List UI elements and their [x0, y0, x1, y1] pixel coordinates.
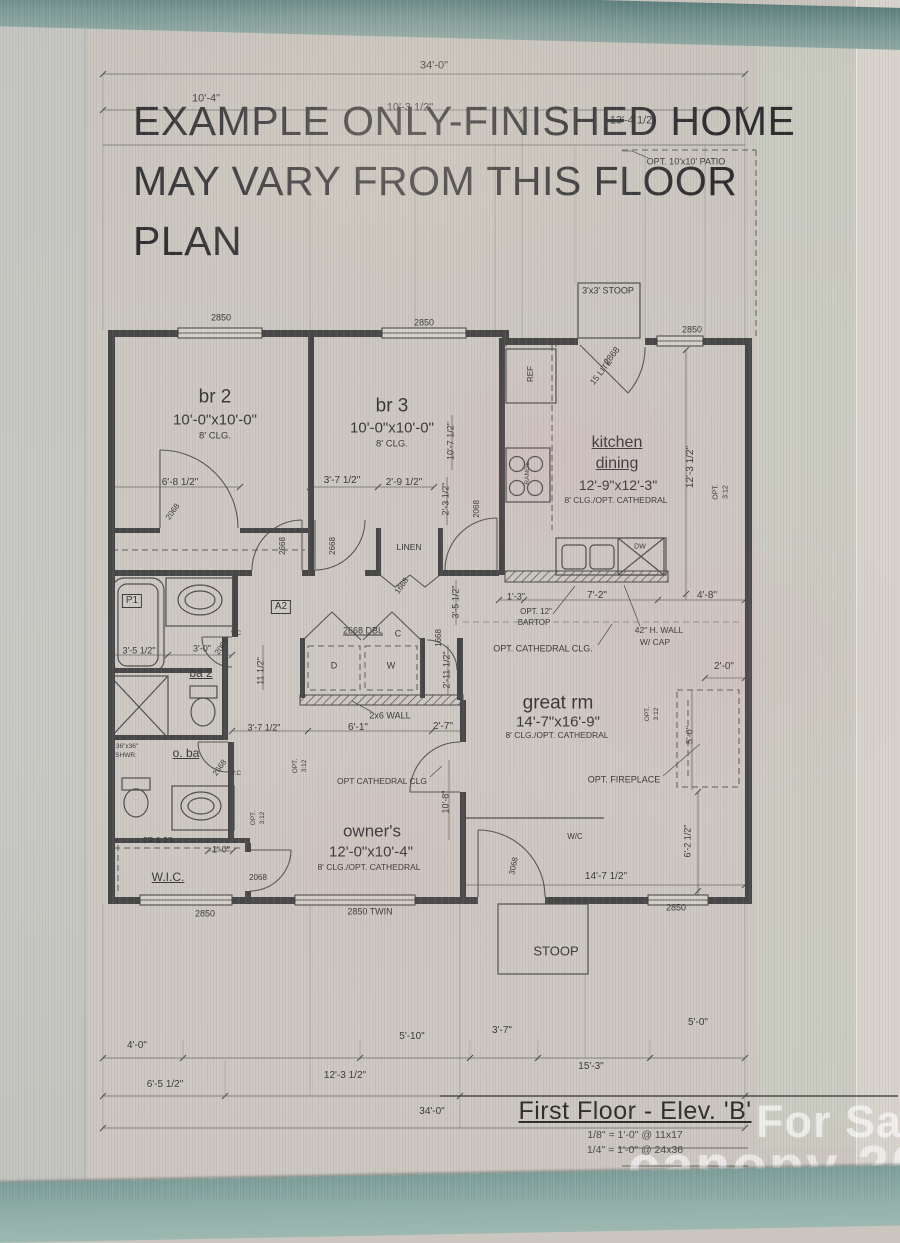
- tag-p1: P1: [122, 594, 142, 608]
- dim: 15'-3": [578, 1062, 603, 1072]
- dim: 2'-9 1/2": [386, 478, 423, 488]
- fixture-dryer: D: [331, 662, 338, 671]
- dim: 10'-8": [442, 791, 451, 814]
- label-linen: LINEN: [396, 543, 421, 552]
- dim: 14'-7 1/2": [585, 872, 627, 882]
- label-stoop-bottom: STOOP: [533, 945, 578, 958]
- dim: 1'-0": [212, 846, 230, 855]
- note-bartop: BARTOP: [518, 619, 551, 627]
- fixture-shower: SHWR.: [115, 753, 137, 760]
- fixture-ref: REF: [527, 366, 535, 382]
- room-ba2: ba 2: [189, 667, 212, 679]
- door-tag: 2068: [249, 874, 267, 882]
- dim: 7'-2": [587, 591, 607, 601]
- dim: 6'-2 1/2": [684, 825, 693, 858]
- dim: 6'-8 1/2": [162, 478, 199, 488]
- dim: 3'-0": [193, 645, 211, 654]
- dim-overall-bottom: 34'-0": [419, 1107, 444, 1117]
- room-greatrm-clg: 8' CLG./OPT. CATHEDRAL: [505, 731, 608, 740]
- room-kitchen: kitchen: [592, 435, 643, 451]
- note-opt-fireplace: OPT. FIREPLACE: [588, 776, 661, 785]
- roof-pitch: 3:12: [260, 812, 267, 825]
- tag-a2: A2: [271, 600, 291, 614]
- room-greatrm: great rm: [523, 694, 594, 713]
- room-br3-size: 10'-0"x10'-0": [350, 421, 434, 436]
- fixture-washer: W: [387, 662, 396, 671]
- room-dining: dining: [596, 456, 639, 472]
- room-kitchen-size: 12'-9"x12'-3": [579, 478, 657, 492]
- dim: 5'-10": [399, 1032, 424, 1042]
- note-vc: V.C: [231, 631, 241, 638]
- door-tag: 2668: [279, 537, 287, 555]
- note-half-wall: W/ CAP: [640, 638, 670, 647]
- door-tag: 2668 DBL: [343, 627, 383, 636]
- dim: 12'-3 1/2": [686, 446, 696, 488]
- room-br3-clg: 8' CLG.: [376, 439, 408, 449]
- window-tag: 2850: [666, 904, 686, 913]
- room-oba: o. ba: [173, 747, 200, 759]
- dim: 3'-7 1/2": [248, 724, 281, 733]
- dim: 2'-7": [433, 722, 453, 732]
- room-owners: owner's: [343, 823, 401, 840]
- roof-pitch: 3:12: [654, 708, 661, 721]
- fixture-dw: DW: [634, 544, 646, 551]
- disclaimer-line: MAY VARY FROM THIS FLOOR: [133, 152, 813, 212]
- room-br2-size: 10'-0"x10'-0": [173, 413, 257, 428]
- roof-pitch: 3:12: [723, 485, 730, 499]
- dim: 2'-3 1/2": [442, 483, 451, 516]
- dim: 2'-0": [714, 662, 734, 672]
- disclaimer-line: EXAMPLE ONLY-FINISHED HOME: [133, 92, 813, 152]
- dim: 12'-3 1/2": [324, 1071, 366, 1081]
- fixture-range: RANGE: [525, 461, 532, 484]
- screen-photo: { "colors": { "teal_band": "#7c9a96", "p…: [0, 0, 900, 1200]
- window-tag: 2850: [211, 314, 231, 323]
- window-tag: 2850: [414, 319, 434, 328]
- note-2x6-wall: 2x6 WALL: [369, 712, 410, 721]
- room-br2: br 2: [199, 388, 232, 407]
- note-vc: V.C: [231, 771, 241, 778]
- dim: 11 1/2": [257, 657, 266, 685]
- roof-pitch: OPT.: [293, 759, 300, 773]
- dim: 10'-7 1/2": [447, 422, 456, 460]
- note-rods-shelves: 2R & 2S: [143, 837, 173, 845]
- room-wic: W.I.C.: [152, 871, 185, 883]
- dim: 3'-5 1/2": [123, 647, 156, 656]
- fixture-shower-size: 36"x36": [116, 744, 138, 751]
- dim: 4'-8": [697, 591, 717, 601]
- room-kitchen-clg: 8' CLG./OPT. CATHEDRAL: [564, 496, 667, 505]
- dim: 5'-0": [688, 1018, 708, 1028]
- room-br2-clg: 8' CLG.: [199, 431, 231, 441]
- dim: 1'-3": [507, 593, 525, 602]
- window-tag: 2850 TWIN: [347, 908, 392, 917]
- label-stoop-top: 3'x3' STOOP: [582, 287, 634, 296]
- label-wc: W/C: [567, 833, 583, 841]
- window-tag: 2850: [195, 910, 215, 919]
- note-bartop: OPT. 12": [520, 608, 552, 616]
- dim: 3'-7 1/2": [324, 476, 361, 486]
- roof-pitch: OPT.: [713, 484, 720, 500]
- door-tag: 2068: [473, 500, 481, 518]
- dim: 6'-1": [348, 723, 368, 733]
- room-br3: br 3: [376, 397, 409, 416]
- note-cathedral: OPT CATHEDRAL CLG: [337, 777, 427, 786]
- dim: 3'-5 1/2": [452, 586, 461, 619]
- roof-pitch: OPT.: [251, 811, 258, 825]
- label-closet: C: [395, 630, 402, 639]
- dim: 5'-0": [686, 726, 695, 744]
- roof-pitch: 3:12: [302, 760, 309, 773]
- window-tag: 2850: [682, 326, 702, 335]
- dim: 4'-0": [127, 1041, 147, 1051]
- door-tag: 2668: [329, 537, 337, 555]
- door-tag: 1668: [435, 629, 443, 647]
- room-owners-clg: 8' CLG./OPT. CATHEDRAL: [317, 863, 420, 872]
- disclaimer-overlay: EXAMPLE ONLY-FINISHED HOME MAY VARY FROM…: [133, 92, 813, 272]
- dim: 6'-5 1/2": [147, 1080, 184, 1090]
- disclaimer-line: PLAN: [133, 212, 813, 272]
- note-half-wall: 42" H. WALL: [635, 626, 684, 635]
- dim-overall-top: 34'-0": [420, 61, 448, 72]
- dim: 3'-7": [492, 1026, 512, 1036]
- roof-pitch: OPT.: [645, 707, 652, 721]
- sheet-title: First Floor - Elev. 'B': [510, 1097, 760, 1126]
- room-greatrm-size: 14'-7"x16'-9": [516, 715, 600, 730]
- note-cathedral: OPT. CATHEDRAL CLG.: [493, 645, 593, 654]
- room-owners-size: 12'-0"x10'-4": [329, 845, 413, 860]
- dim: 2'-11 1/2": [443, 651, 452, 688]
